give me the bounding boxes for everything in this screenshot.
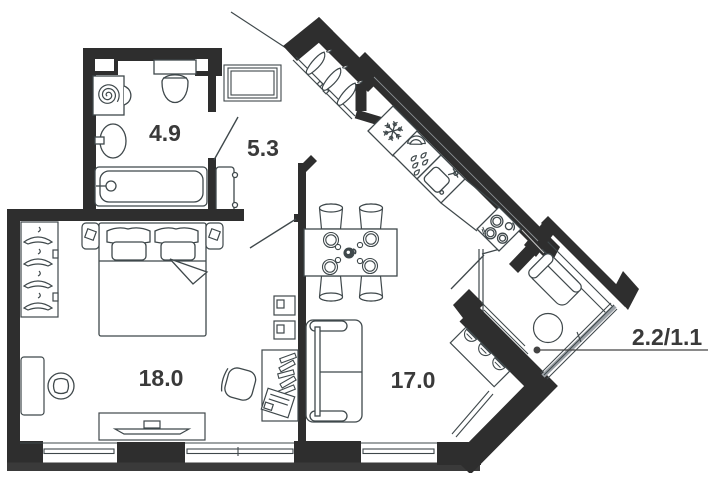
- svg-text:4.9: 4.9: [149, 120, 181, 146]
- svg-text:2.2/1.1: 2.2/1.1: [632, 324, 703, 350]
- svg-text:18.0: 18.0: [139, 365, 184, 391]
- svg-text:5.3: 5.3: [247, 135, 279, 161]
- svg-text:17.0: 17.0: [391, 367, 436, 393]
